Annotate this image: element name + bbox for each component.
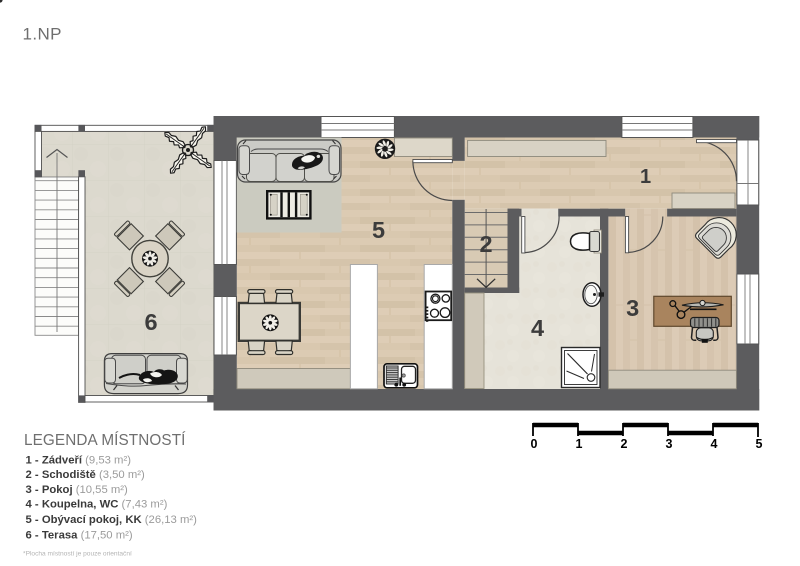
svg-text:2 - Schodiště (3,50 m²): 2 - Schodiště (3,50 m²) [26, 469, 146, 481]
svg-text:1: 1 [576, 437, 583, 451]
svg-text:1.NP: 1.NP [23, 25, 62, 44]
svg-text:1 - Zádveří (9,53 m²): 1 - Zádveří (9,53 m²) [26, 455, 132, 467]
svg-text:0: 0 [531, 437, 538, 451]
svg-text:2: 2 [621, 437, 628, 451]
svg-text:4 - Koupelna, WC (7,43 m²): 4 - Koupelna, WC (7,43 m²) [26, 499, 168, 511]
svg-text:3 - Pokoj (10,55 m²): 3 - Pokoj (10,55 m²) [26, 484, 129, 496]
svg-text:LEGENDA MÍSTNOSTÍ: LEGENDA MÍSTNOSTÍ [24, 432, 186, 449]
svg-text:*Plocha místností je pouze ori: *Plocha místností je pouze orientační [23, 551, 132, 558]
svg-text:3: 3 [666, 437, 673, 451]
svg-text:4: 4 [711, 437, 718, 451]
svg-text:3: 3 [626, 295, 639, 321]
svg-text:2: 2 [479, 231, 492, 257]
svg-text:5: 5 [756, 437, 763, 451]
svg-text:1: 1 [640, 166, 651, 188]
svg-text:6: 6 [144, 309, 157, 335]
svg-text:4: 4 [531, 315, 544, 341]
svg-text:5: 5 [372, 217, 385, 243]
svg-text:6 - Terasa (17,50 m²): 6 - Terasa (17,50 m²) [26, 530, 133, 542]
svg-text:5 - Obývací pokoj, KK (26,13 m: 5 - Obývací pokoj, KK (26,13 m²) [26, 514, 198, 526]
